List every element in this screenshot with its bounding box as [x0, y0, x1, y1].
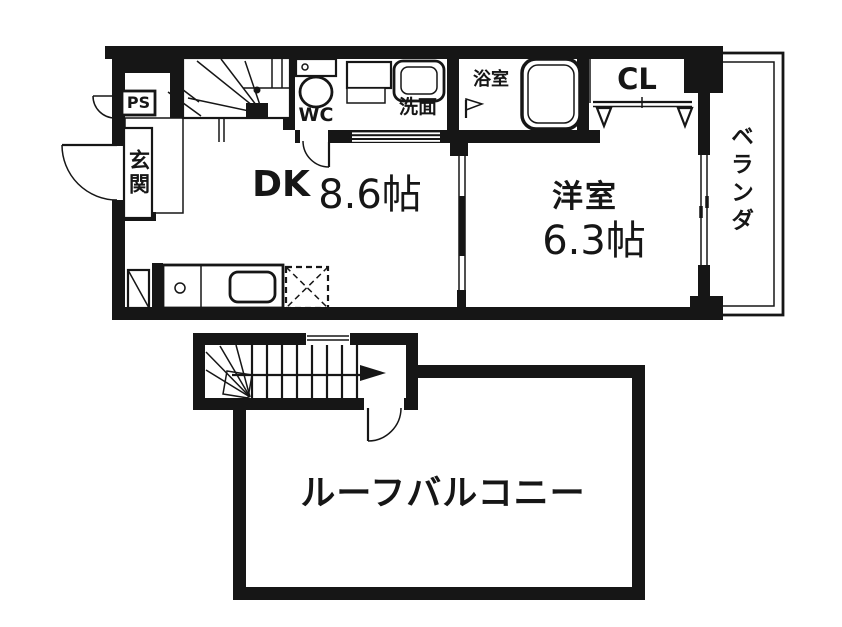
label-dining-kitchen: DK — [250, 163, 312, 207]
veranda-window — [697, 155, 711, 265]
label-toilet: WC — [294, 102, 338, 128]
floor-plan-page: PS 玄関 WC 洗面 浴室 CL ベランダ DK 8.6帖 洋室 6.3帖 ル… — [0, 0, 842, 627]
staircase-icon — [168, 58, 290, 142]
room-partition-wall — [459, 156, 465, 292]
label-dining-kitchen-size: 8.6帖 — [306, 170, 434, 220]
label-bathroom: 浴室 — [462, 67, 520, 93]
kitchen-counter-icon — [128, 263, 328, 313]
lower-staircase-icon — [193, 332, 418, 441]
ps-door-arc — [93, 96, 115, 118]
bathtub-icon — [522, 59, 580, 129]
label-pipe-space: PS — [122, 91, 155, 115]
entrance-door-arc — [62, 145, 117, 200]
balcony-door-arc — [368, 408, 401, 441]
label-western-room-size: 6.3帖 — [530, 216, 658, 266]
fridge-space — [286, 267, 328, 308]
label-closet: CL — [606, 60, 668, 98]
label-entrance: 玄関 — [124, 130, 152, 216]
label-washroom: 洗面 — [389, 95, 447, 119]
label-western-room: 洋室 — [543, 176, 627, 218]
label-veranda: ベランダ — [721, 114, 757, 246]
label-roof-balcony: ルーフバルコニー — [293, 466, 593, 522]
stair-window — [306, 332, 350, 345]
bath-door-mark — [466, 99, 482, 110]
